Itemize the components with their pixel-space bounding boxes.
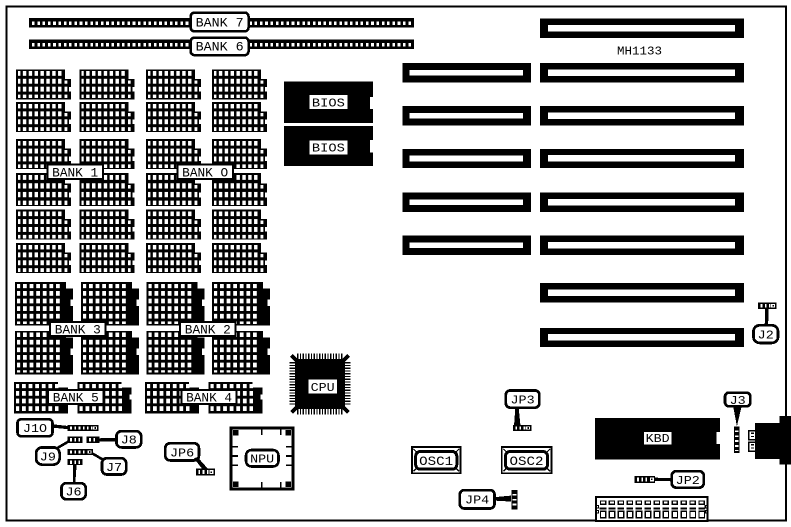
svg-text:JP6: JP6 [170,446,194,460]
svg-text:BANK 6: BANK 6 [196,40,244,55]
svg-text:OSC2: OSC2 [510,455,544,469]
svg-text:CPU: CPU [311,381,335,395]
svg-text:BANK 1: BANK 1 [52,166,98,180]
svg-text:BIOS: BIOS [312,96,345,110]
svg-text:BIOS: BIOS [312,142,345,156]
svg-text:OSC1: OSC1 [419,455,453,469]
svg-text:BANK 4: BANK 4 [186,392,232,406]
svg-text:BANK O: BANK O [182,166,228,180]
svg-text:BANK 3: BANK 3 [55,324,101,338]
svg-text:JP2: JP2 [676,474,700,488]
svg-text:J1O: J1O [23,422,47,436]
svg-text:J6: J6 [66,486,82,500]
svg-text:J7: J7 [106,461,122,475]
svg-text:JP4: JP4 [465,494,489,508]
svg-text:J9: J9 [40,450,56,464]
svg-text:KBD: KBD [646,432,670,446]
svg-text:J2: J2 [758,329,774,343]
svg-text:BANK 2: BANK 2 [185,324,231,338]
svg-text:NPU: NPU [250,453,274,467]
svg-text:BANK 7: BANK 7 [196,16,244,31]
svg-text:J3: J3 [730,394,746,408]
svg-text:MH1133: MH1133 [617,45,662,59]
svg-text:BANK 5: BANK 5 [53,392,99,406]
svg-text:J8: J8 [121,434,137,448]
svg-text:JP3: JP3 [511,393,535,407]
